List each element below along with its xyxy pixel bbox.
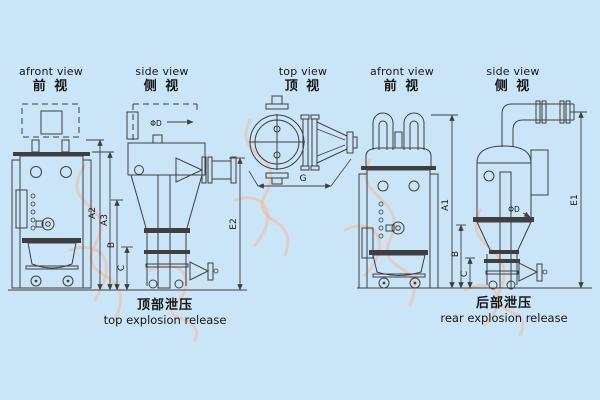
caption-top-release-zh: 顶部泄压 bbox=[86, 298, 244, 314]
dimension-b-right: B bbox=[451, 225, 466, 288]
dim-label-a2: A2 bbox=[88, 207, 98, 219]
dim-label-b-right: B bbox=[451, 251, 461, 257]
dim-label-phi-d-rear: ΦD bbox=[508, 205, 520, 214]
view-label-top: top view 顶 视 bbox=[258, 66, 348, 95]
dimension-a1: A1 bbox=[431, 115, 458, 288]
caption-rear-release: 后部泄压 rear explosion release bbox=[418, 296, 590, 325]
view-label-front-top-zh: 前 视 bbox=[6, 80, 96, 95]
view-label-side-rear-en: side view bbox=[468, 66, 558, 79]
view-label-top-zh: 顶 视 bbox=[258, 80, 348, 95]
view-label-front-top: afront view 前 视 bbox=[6, 66, 96, 95]
dimension-c-left: C bbox=[117, 247, 133, 290]
view-label-front-top-en: afront view bbox=[6, 66, 96, 79]
dim-label-e1: E1 bbox=[570, 194, 580, 205]
view-label-side-top-zh: 侧 视 bbox=[117, 80, 207, 95]
view-label-front-rear-en: afront view bbox=[357, 66, 447, 79]
dim-label-c-right: C bbox=[460, 271, 470, 277]
dimension-g: G bbox=[249, 159, 351, 186]
dim-label-phi-d-side: ΦD bbox=[150, 119, 162, 128]
dim-label-a3: A3 bbox=[100, 214, 110, 226]
dimension-c-right: C bbox=[460, 258, 475, 288]
view-label-side-top: side view 侧 视 bbox=[117, 66, 207, 95]
diagram-page: A2 A3 B C E2 ΦD G bbox=[0, 0, 600, 400]
view-label-front-rear: afront view 前 视 bbox=[357, 66, 447, 95]
caption-top-release-en: top explosion release bbox=[86, 314, 244, 328]
view-label-side-rear-zh: 侧 视 bbox=[468, 80, 558, 95]
view-label-side-top-en: side view bbox=[117, 66, 207, 79]
dimension-e1: E1 bbox=[570, 112, 587, 288]
machine-top-view bbox=[249, 96, 357, 184]
dim-label-g: G bbox=[300, 174, 307, 184]
view-label-top-en: top view bbox=[258, 66, 348, 79]
dim-label-a1: A1 bbox=[441, 199, 451, 211]
machine-front-view-rear-release bbox=[359, 113, 438, 288]
view-label-side-rear: side view 侧 视 bbox=[468, 66, 558, 95]
machine-side-view-rear-release bbox=[473, 101, 574, 289]
technical-drawing-canvas: A2 A3 B C E2 ΦD G bbox=[0, 0, 600, 400]
view-label-front-rear-zh: 前 视 bbox=[357, 80, 447, 95]
dim-label-c-left: C bbox=[117, 265, 127, 271]
caption-rear-release-en: rear explosion release bbox=[418, 312, 590, 326]
dim-label-b-left: B bbox=[107, 242, 117, 248]
caption-rear-release-zh: 后部泄压 bbox=[418, 296, 590, 312]
dim-label-e2: E2 bbox=[229, 218, 239, 229]
dimension-b-left: B bbox=[107, 200, 123, 290]
caption-top-release: 顶部泄压 top explosion release bbox=[86, 298, 244, 327]
machine-side-view-top-release bbox=[127, 104, 236, 288]
